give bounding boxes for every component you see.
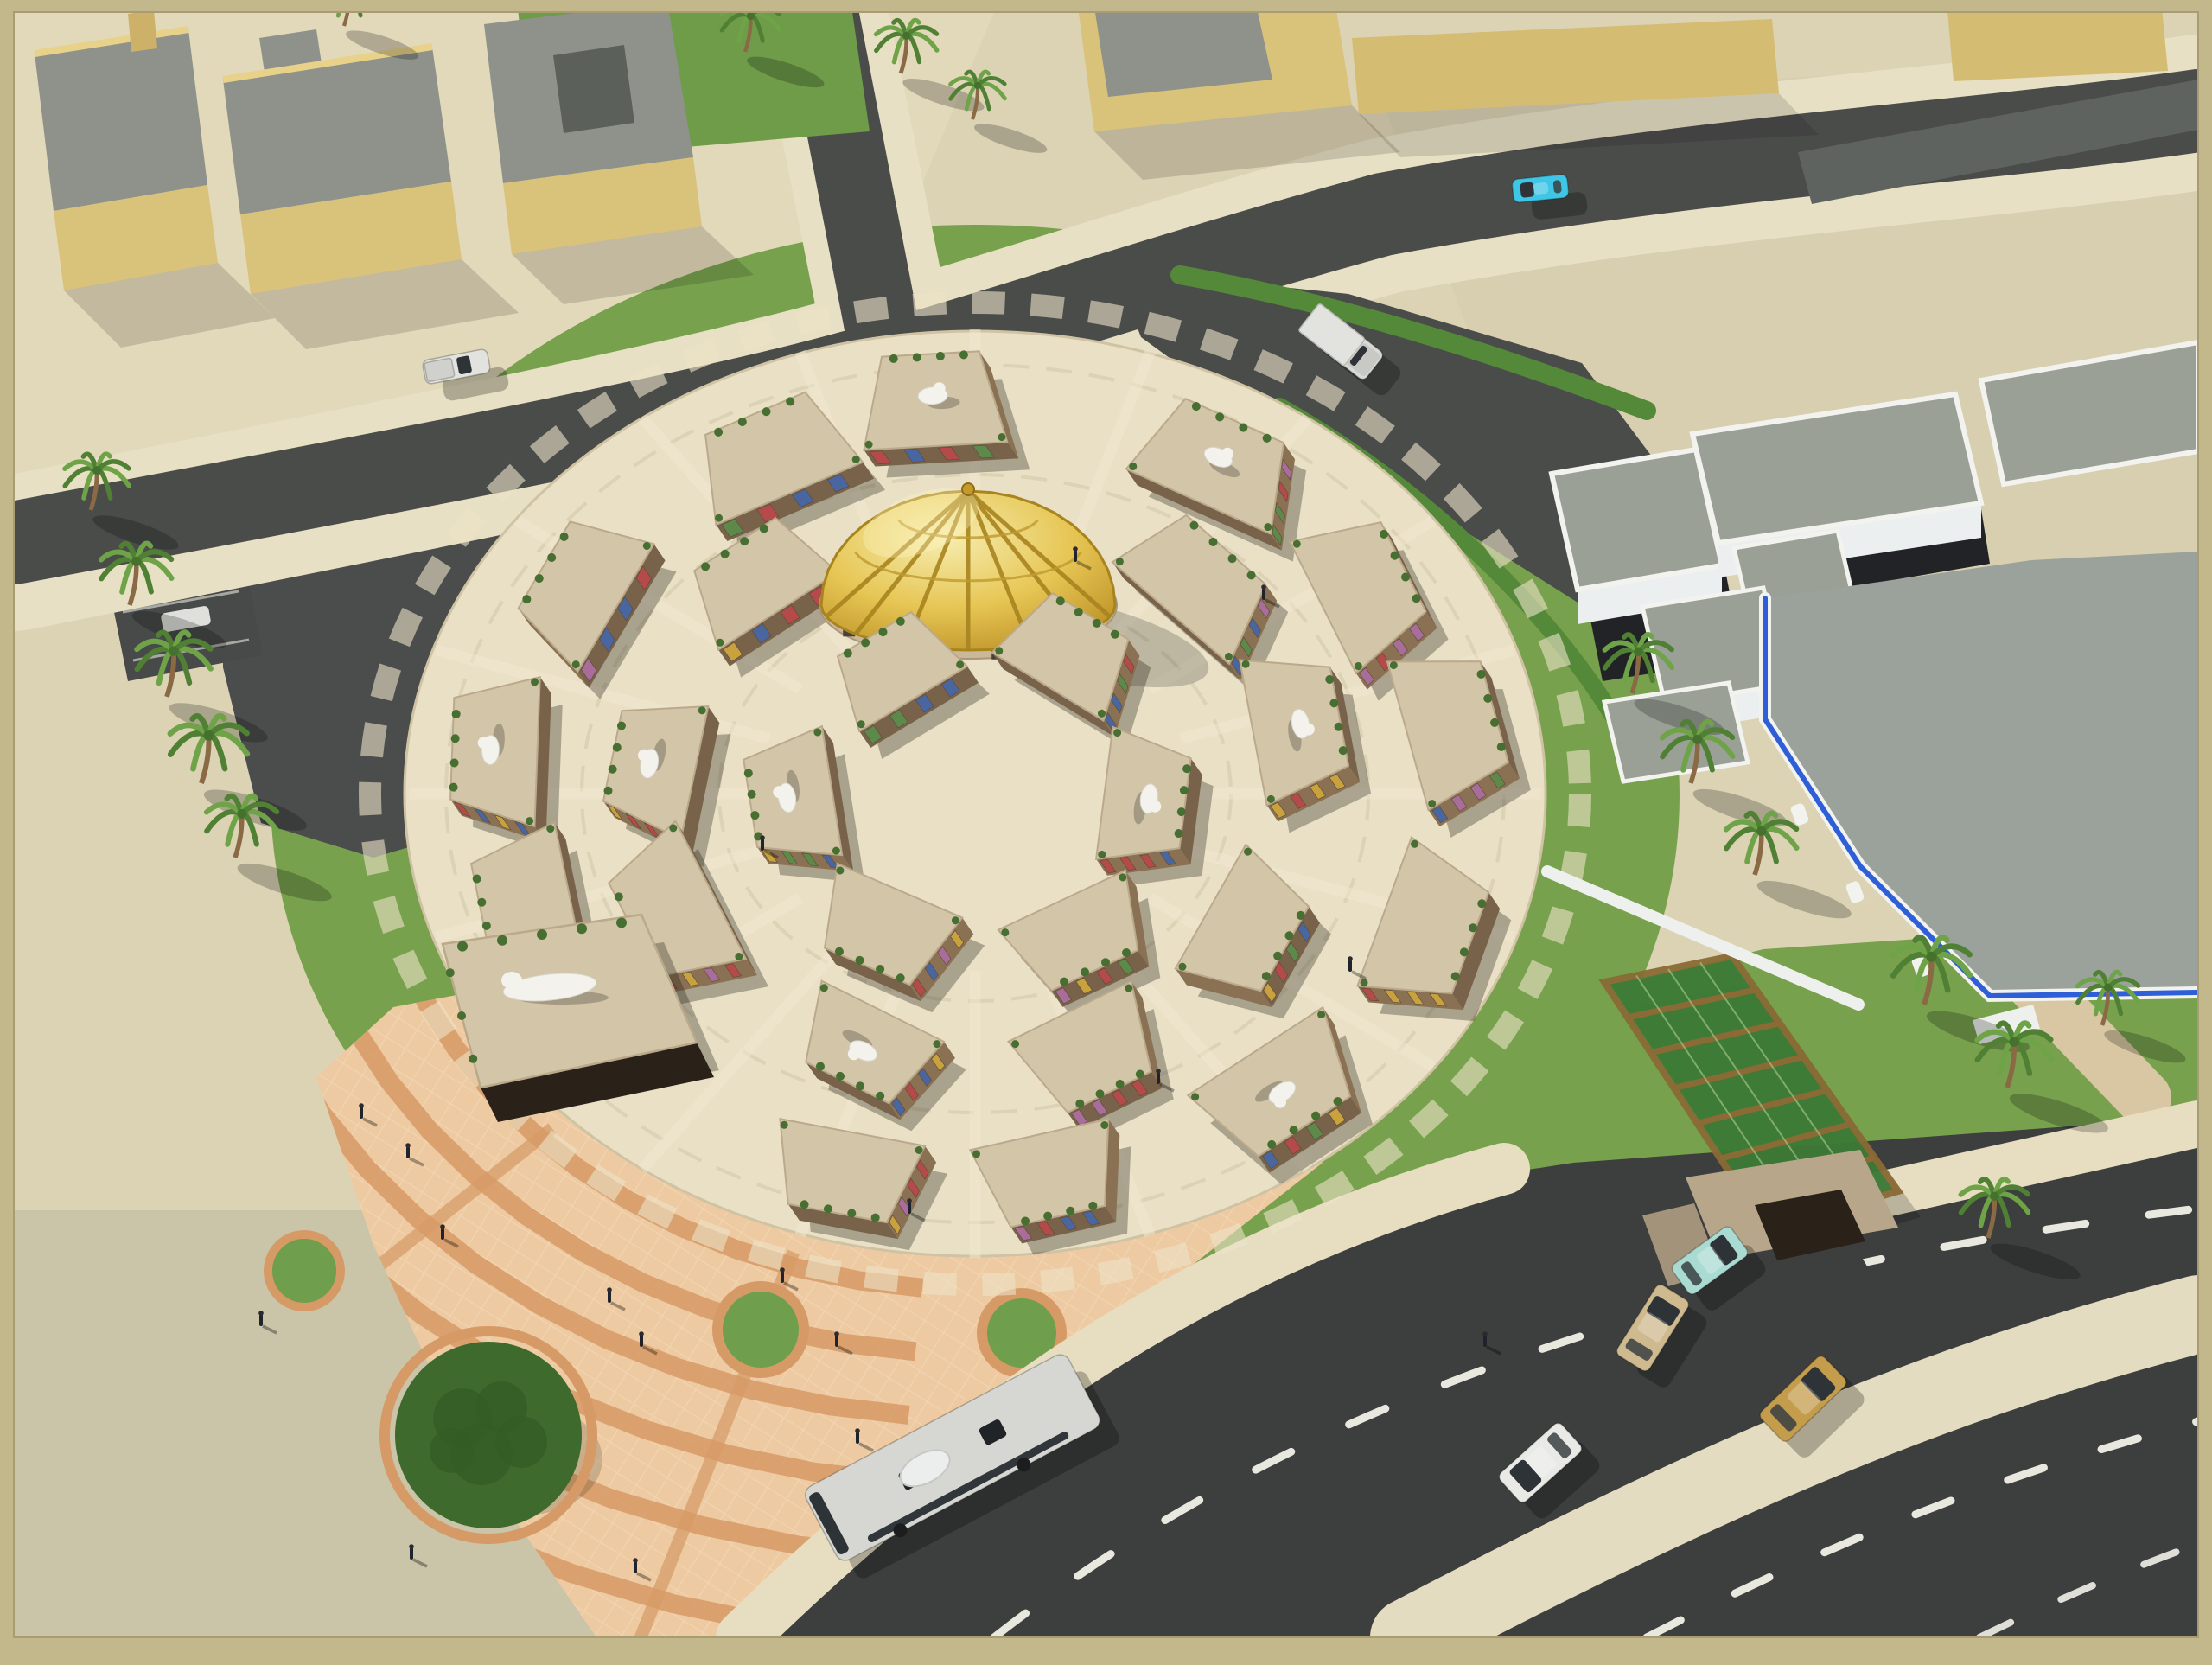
gate-planter [616,917,627,928]
gate-planter [469,1055,477,1063]
person-head [440,1224,445,1229]
person-head [780,1267,785,1273]
aerial-architectural-render [0,0,2212,1665]
frame-top [0,0,2212,12]
palm-crown [974,82,982,90]
frame-right [2198,0,2212,1665]
gate-planter [446,968,455,977]
palm-crown [1926,952,1936,962]
dome-finial [962,483,974,495]
person-head [855,1428,860,1433]
palm-crown [747,12,755,20]
person-head [409,1544,414,1549]
person-head [1073,546,1078,552]
palm-crown [169,646,179,656]
palm-crown [1634,647,1643,656]
person-head [1348,956,1353,961]
car-windshield [1520,182,1534,198]
palm-crown [237,809,246,819]
palm-crown [1692,735,1702,744]
person-head [405,1143,411,1148]
chimney [128,10,157,52]
gate-planter [457,1011,466,1020]
person-head [834,1331,839,1336]
palm-crown [203,730,214,741]
person-head [633,1558,638,1563]
white-bldg-roof [1552,450,1722,590]
scene-svg [0,0,2212,1665]
yellow-bldg-roof [35,29,207,211]
plaza-lawn-dot [268,1234,341,1307]
yellow-bldg-roof [1094,0,1272,97]
person-head [760,835,765,840]
person-head [607,1287,612,1292]
palm-crown [92,466,101,475]
gate-planter [497,935,507,946]
bush-blob [430,1428,475,1473]
person-head [359,1103,364,1108]
person-head [1482,1331,1488,1336]
gate-planter [537,929,547,940]
palm-crown [902,32,911,41]
frame-bottom [0,1637,2212,1665]
person-head [639,1331,644,1336]
palm-crown [1990,1191,1999,1201]
person-head [907,1198,912,1203]
person-head [1156,1069,1161,1074]
person-head [258,1311,264,1316]
palm-crown [1756,826,1766,836]
plaza-lawn-ring [717,1286,804,1373]
gate-planter [457,941,468,952]
palm-crown [2104,984,2113,992]
gate-statue [501,972,522,989]
car-roof-highlight [1533,182,1549,195]
frame-left [0,0,14,1665]
courtyard-cut [553,45,634,133]
gate-planter [577,923,587,934]
palm-crown [131,557,141,566]
palm-crown [2009,1037,2019,1047]
person-head [1261,584,1266,590]
